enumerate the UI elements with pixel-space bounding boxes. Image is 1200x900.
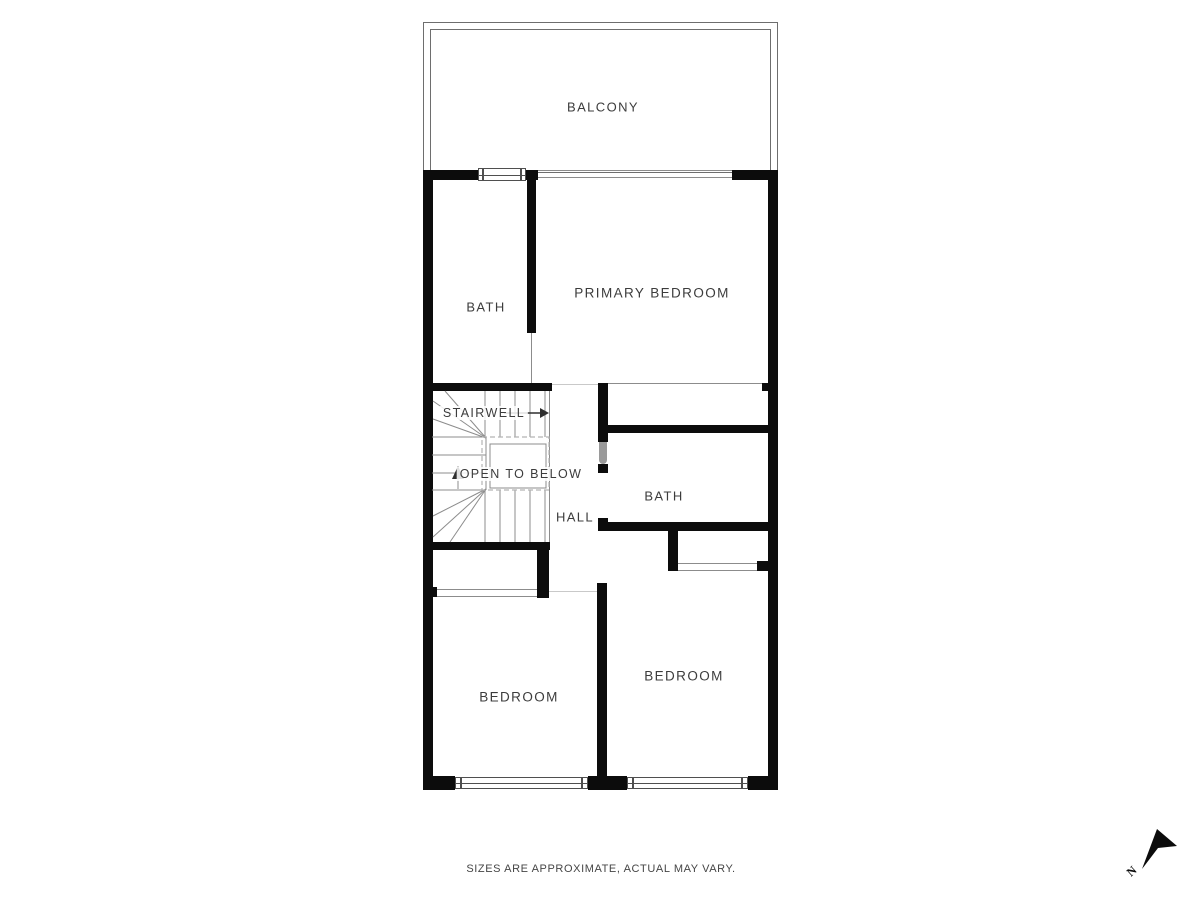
compass: N [0, 0, 1200, 900]
north-label: N [1124, 863, 1140, 879]
floor-plan: BALCONY BATH PRIMARY BEDROOM STAIRWELL O… [0, 0, 1200, 900]
north-arrow-icon [1142, 829, 1177, 869]
